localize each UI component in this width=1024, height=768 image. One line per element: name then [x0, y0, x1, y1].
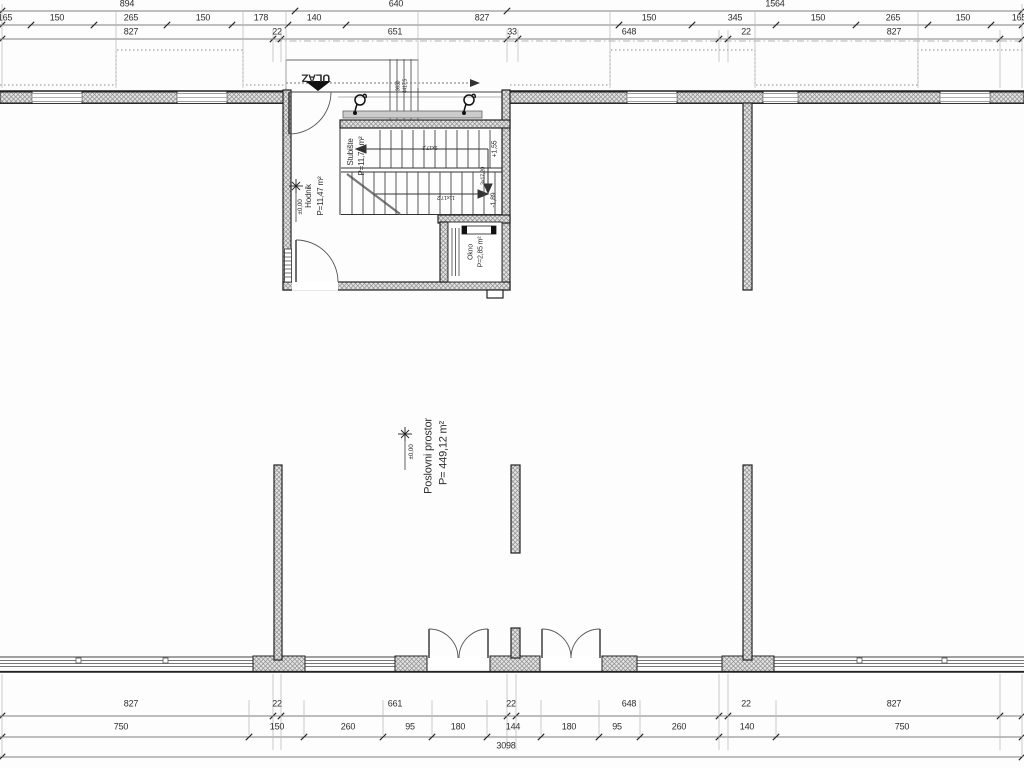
room-hodnik-area: P=11,47 m²: [317, 177, 325, 216]
dim-bottom-inner-0: 827: [124, 700, 138, 709]
level-minus-189: -1,89: [491, 193, 498, 208]
dim-top-overall-1: 640: [389, 0, 403, 9]
canopy-outline: [0, 50, 1024, 85]
dim-bottom-detail-3: 95: [405, 723, 415, 732]
dim-bottom-inner-4: 648: [622, 700, 636, 709]
dim-bottom-inner-5: 22: [741, 700, 751, 709]
stair-width-note-1: 3630: [397, 81, 402, 91]
dim-bottom-detail-0: 750: [114, 723, 128, 732]
level-hodnik: ±0,00: [298, 199, 305, 214]
dim-bottom-inner-2: 661: [388, 700, 402, 709]
radiator-grille: [285, 249, 292, 282]
dim-top-detail-11: 150: [956, 14, 970, 23]
floor-plan-canvas: 8946401564165150265150178140827150345150…: [0, 0, 1024, 768]
dim-top-detail-6: 827: [475, 14, 489, 23]
entrance-door: [289, 92, 331, 134]
entrance-label: ULAZ: [302, 72, 331, 83]
room-stubiste-area: P=11,71 m²: [358, 137, 366, 176]
dim-top-detail-8: 345: [728, 14, 742, 23]
dim-bottom-detail-10: 750: [895, 723, 909, 732]
dim-top-inner-0: 827: [124, 28, 138, 37]
dim-bottom-detail-1: 150: [270, 723, 284, 732]
dim-bottom-inner-3: 22: [506, 700, 516, 709]
dim-bottom-detail-5: 144: [506, 723, 520, 732]
dim-bottom-inner-6: 827: [887, 700, 901, 709]
room-poslovni-name: Poslovni prostor: [424, 418, 435, 494]
dim-top-detail-10: 265: [886, 14, 900, 23]
floor-plan-drawing: [0, 0, 1024, 768]
exterior-step: [487, 290, 503, 298]
stair-width-note-2: 4417,5: [404, 79, 409, 93]
dim-bottom-detail-2: 260: [341, 723, 355, 732]
dim-bottom-inner-1: 22: [272, 700, 282, 709]
top-wall: [0, 91, 1024, 104]
dim-top-detail-5: 140: [307, 14, 321, 23]
dim-bottom-detail-4: 180: [451, 723, 465, 732]
stair-riser-note: 3x17,20: [481, 167, 487, 185]
stair-run-lower-note: 11x17,2: [437, 193, 455, 199]
dim-top-detail-3: 150: [196, 14, 210, 23]
dim-bottom-detail-7: 95: [612, 723, 622, 732]
dim-top-inner-3: 33: [507, 28, 517, 37]
dim-top-inner-5: 22: [741, 28, 751, 37]
dim-top-inner-1: 22: [272, 28, 282, 37]
dim-top-detail-12: 165: [1012, 14, 1024, 23]
dim-bottom-overall-0: 3098: [496, 742, 515, 751]
room-poslovni-area: P= 449,12 m²: [439, 421, 450, 485]
hodnik-door: [296, 240, 338, 282]
dim-bottom-detail-6: 180: [562, 723, 576, 732]
dim-bottom-detail-9: 140: [740, 723, 754, 732]
dim-top-detail-0: 165: [0, 14, 12, 23]
dim-bottom-detail-8: 260: [672, 723, 686, 732]
entrance-landing: [343, 111, 482, 118]
level-plus-155: +1,55: [492, 141, 499, 158]
direction-arrow: [470, 79, 480, 87]
dim-top-overall-0: 894: [120, 0, 134, 9]
dim-top-inner-4: 648: [622, 28, 636, 37]
dim-top-detail-4: 178: [254, 14, 268, 23]
dim-top-detail-2: 265: [124, 14, 138, 23]
room-okno-name: Okno: [468, 244, 475, 260]
dim-top-inner-6: 827: [887, 28, 901, 37]
dim-top-detail-1: 150: [50, 14, 64, 23]
double-door-right: [542, 629, 600, 658]
dim-top-inner-2: 651: [388, 28, 402, 37]
room-hodnik-name: Hodnik: [305, 184, 313, 208]
stair-run-upper-note: 9x17,2: [422, 143, 437, 149]
dim-top-detail-9: 150: [811, 14, 825, 23]
level-hall: ±0,00: [409, 444, 416, 459]
room-okno-area: P=2,85 m²: [478, 237, 485, 268]
dim-top-detail-7: 150: [642, 14, 656, 23]
elevator-shaft: [448, 222, 502, 282]
interior-walls: [274, 103, 752, 660]
double-door-left: [429, 629, 488, 658]
dim-top-overall-2: 1564: [765, 0, 784, 9]
room-stubiste-name: Stubište: [347, 138, 355, 165]
